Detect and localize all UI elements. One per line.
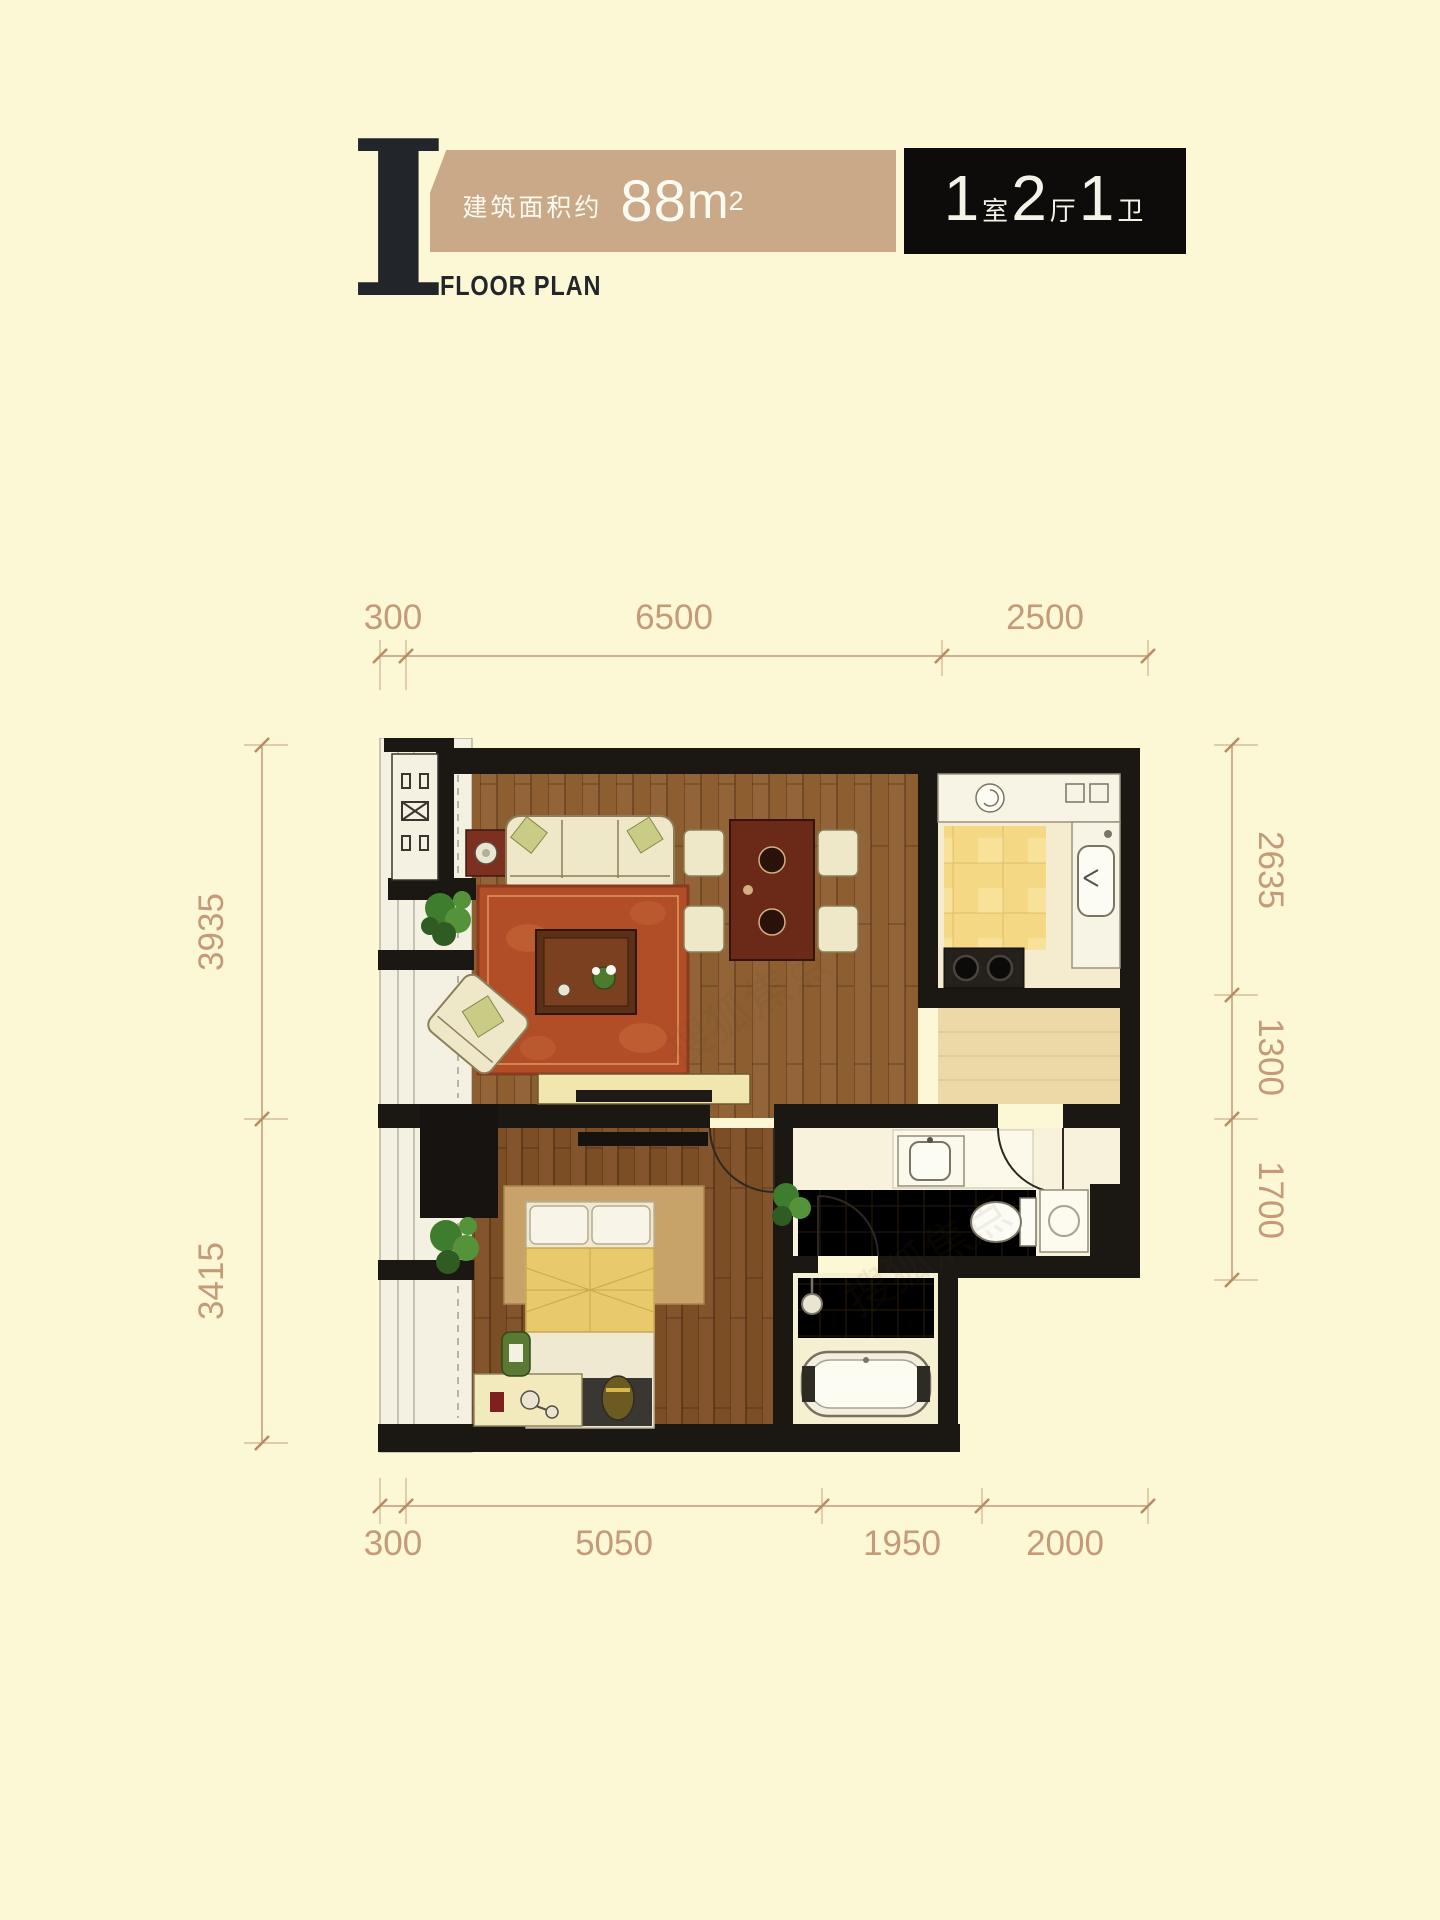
dim-bottom-3: 1950 xyxy=(832,1524,972,1564)
hall-label: 厅 xyxy=(1050,191,1076,228)
area-unit: m xyxy=(687,172,729,230)
side-table-lamp xyxy=(466,830,506,876)
hall-count: 2 xyxy=(1011,148,1047,248)
entry-cabinet xyxy=(392,754,438,880)
bath-count: 1 xyxy=(1079,148,1115,248)
floor-plan-page: { "page": { "background": "#fcf8d5" }, "… xyxy=(0,0,1440,1920)
bottle-bedroom xyxy=(502,1332,530,1376)
dim-bottom-4: 2000 xyxy=(995,1524,1135,1564)
dim-top-1: 300 xyxy=(323,598,463,638)
dim-right-2: 1300 xyxy=(1250,987,1290,1127)
washing-machine xyxy=(1040,1190,1088,1252)
dim-bottom-1: 300 xyxy=(323,1524,463,1564)
bathtub xyxy=(802,1352,930,1416)
dim-left-1: 3935 xyxy=(192,862,232,1002)
layout-banner: 1 室 2 厅 1 卫 xyxy=(904,148,1186,254)
dim-right-1: 2635 xyxy=(1250,800,1290,940)
floor-plan-subtitle: FLOOR PLAN xyxy=(440,270,601,302)
dim-left-2: 3415 xyxy=(192,1211,232,1351)
plan-index-letter: I xyxy=(348,138,438,318)
bath-label: 卫 xyxy=(1117,191,1143,228)
dim-bottom-2: 5050 xyxy=(544,1524,684,1564)
coffee-table xyxy=(536,930,636,1014)
area-exponent: 2 xyxy=(729,188,744,215)
tv-console-living xyxy=(538,1074,750,1104)
dim-right-3: 1700 xyxy=(1250,1130,1290,1270)
area-prefix-label: 建筑面积约 xyxy=(462,188,602,224)
nightstand xyxy=(474,1374,582,1426)
vanity-sink xyxy=(898,1136,964,1186)
room-count: 1 xyxy=(944,148,980,248)
floor-plan-drawing: 搜狐焦点 搜狐焦点 xyxy=(378,738,1148,1468)
dim-top-2: 6500 xyxy=(604,598,744,638)
bedroom-wardrobe xyxy=(420,1104,498,1218)
sofa xyxy=(506,816,674,896)
room-label: 室 xyxy=(982,191,1008,228)
stove xyxy=(944,948,1024,988)
area-banner: 建筑面积约 88 m 2 xyxy=(430,150,896,252)
area-value: 88 xyxy=(620,168,687,235)
bedroom-tv xyxy=(578,1132,708,1146)
dim-top-3: 2500 xyxy=(975,598,1115,638)
kitchen-tile xyxy=(944,826,1046,950)
